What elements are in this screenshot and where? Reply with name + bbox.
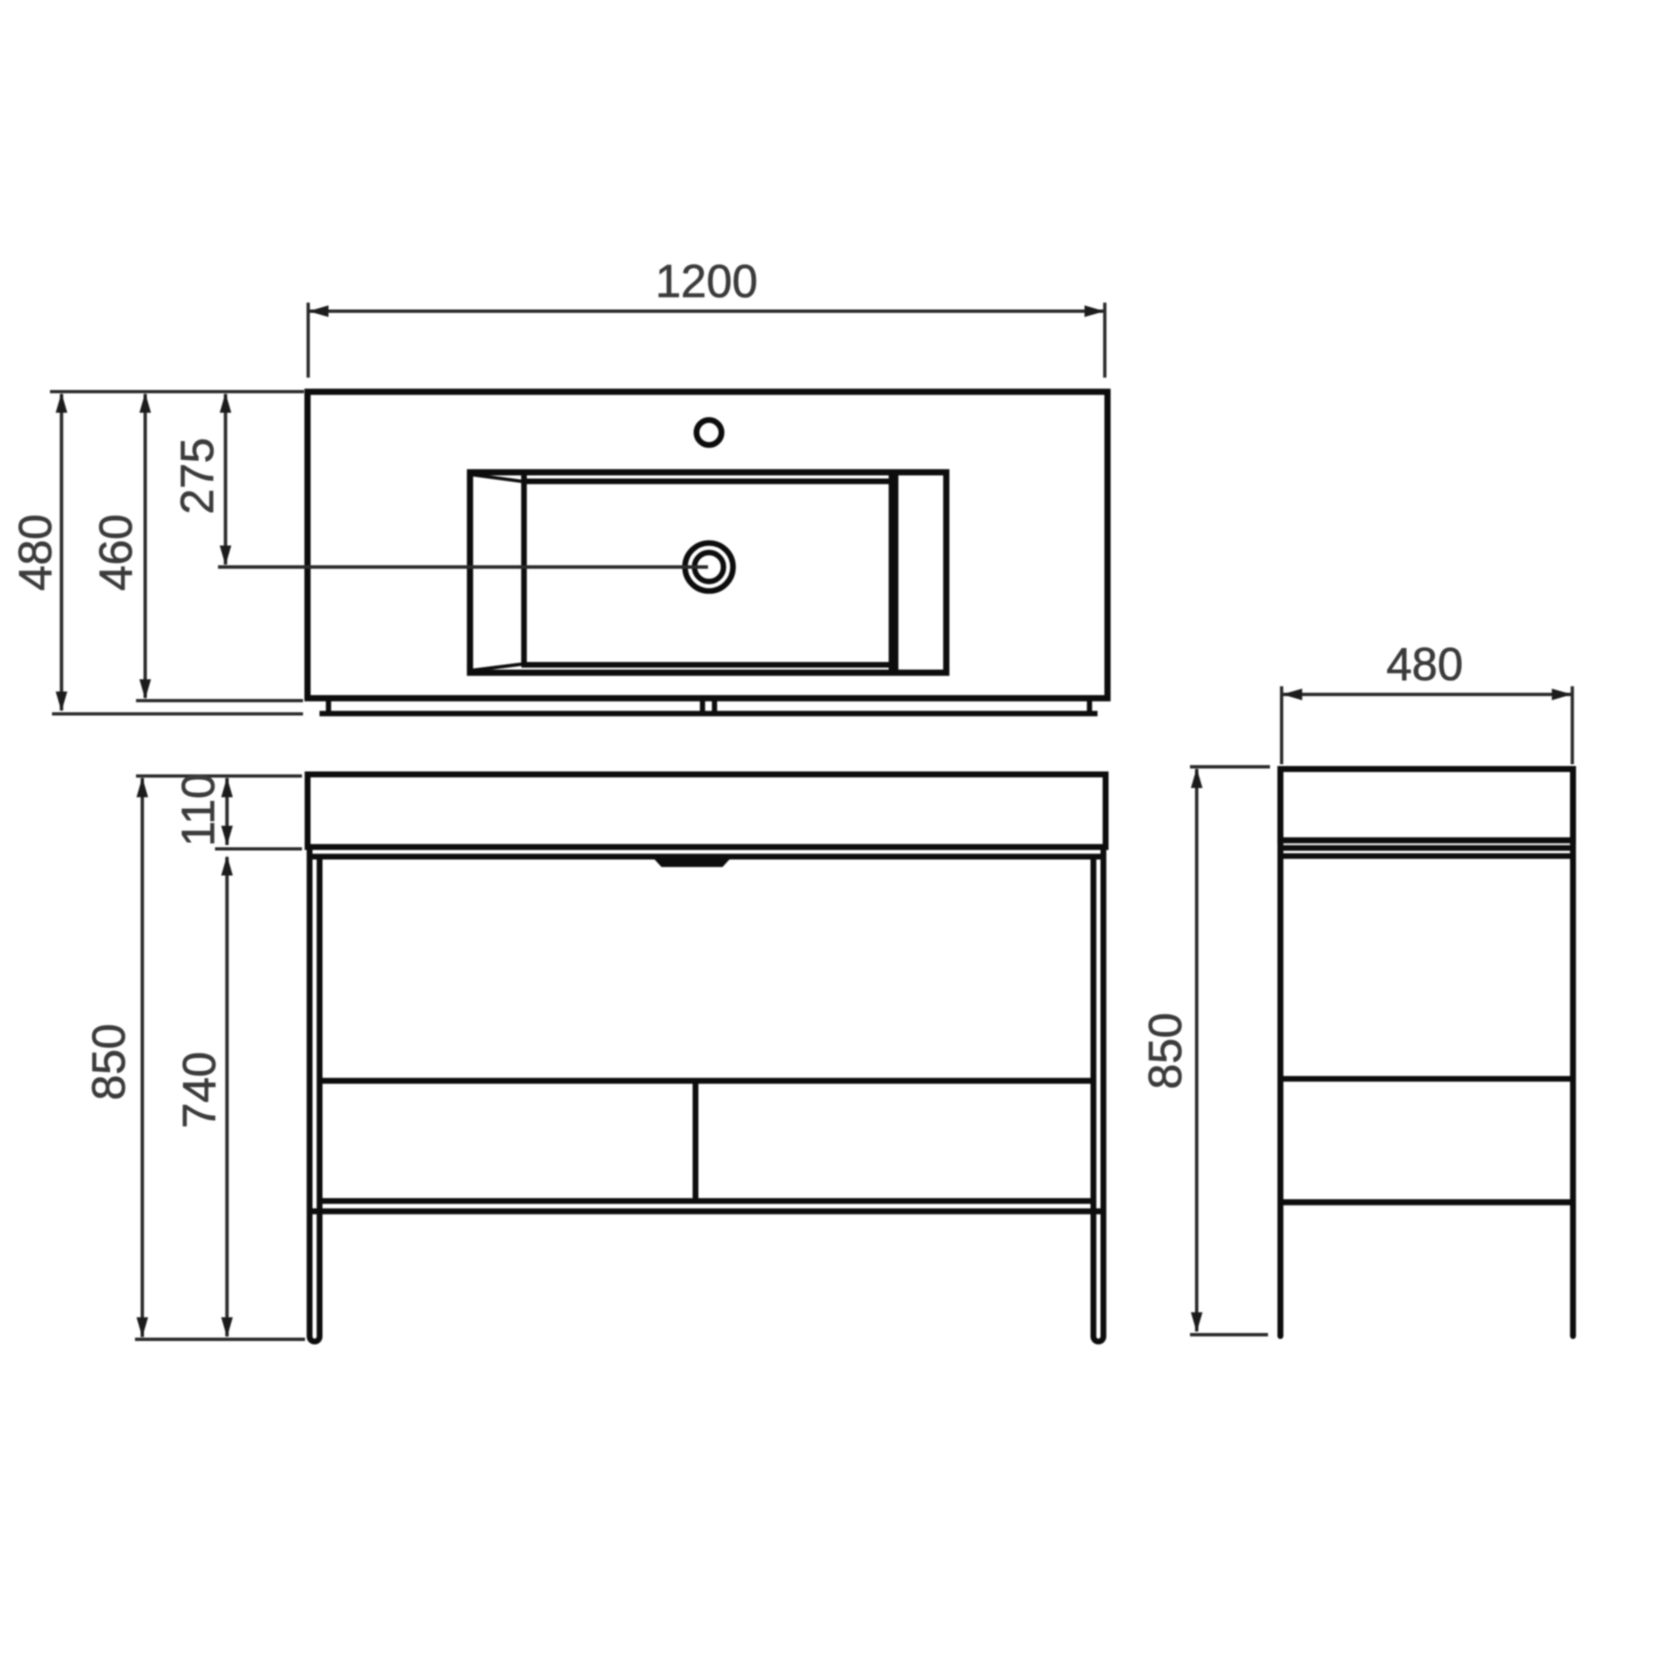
svg-text:1200: 1200 [655,255,757,307]
svg-text:850: 850 [83,1024,135,1101]
svg-text:275: 275 [171,438,223,515]
svg-text:850: 850 [1139,1013,1191,1090]
svg-text:740: 740 [173,1052,225,1129]
svg-text:480: 480 [1386,638,1463,690]
svg-text:480: 480 [9,514,61,591]
svg-text:110: 110 [172,773,224,846]
svg-text:460: 460 [90,514,142,591]
